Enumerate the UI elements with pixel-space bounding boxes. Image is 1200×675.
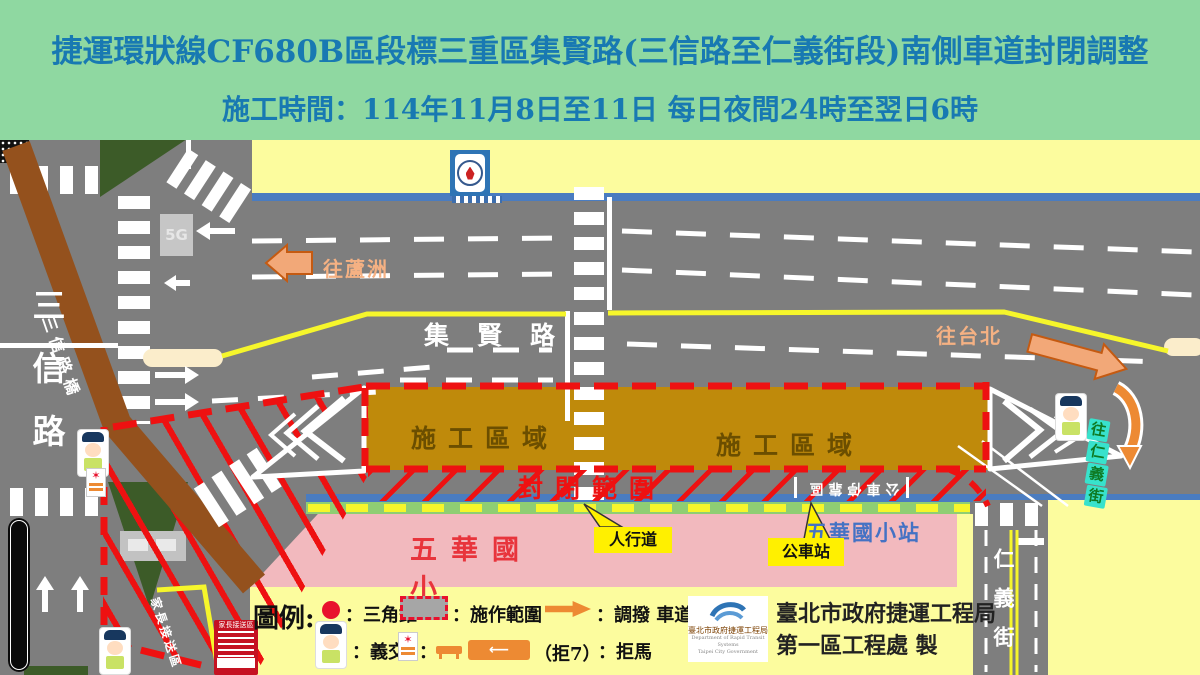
mrt-logo-en2: Taipei City Government: [688, 649, 768, 656]
legend-lane-shift-label: ：調撥 車道: [596, 601, 692, 627]
legend-police-icon: [316, 622, 346, 668]
legend-barrier-label: ：拒馬: [598, 638, 652, 664]
barrier-icon: [436, 646, 462, 654]
to-renyi-char: 義: [1084, 462, 1108, 486]
to-renyi-char: 仁: [1085, 440, 1109, 464]
sign-footer-bar: [217, 658, 255, 668]
legend-work-area-label: ：施作範圍: [452, 601, 542, 627]
title-line2: 施工時間：114年11月8日至11日 每日夜間24時至翌日6時: [0, 88, 1200, 128]
legend-title: 圖例:: [253, 598, 315, 635]
parent-pickup-sign-text: 家長接送區: [214, 620, 258, 630]
bus-bay-road-text: 公車停靠區: [797, 477, 907, 499]
sidewalk-callout: 人行道: [594, 527, 672, 553]
legend-warning-light-icon: ✶: [398, 632, 418, 661]
map-linework: [0, 140, 1200, 675]
to-renyi-char: 街: [1084, 485, 1108, 509]
sidewalk-callout-tail: [584, 504, 622, 527]
warning-light-icon: ✶: [86, 468, 106, 497]
busstop-callout: 公車站: [768, 538, 844, 566]
org-name: 臺北市政府捷運工程局 第一區工程處 製: [776, 598, 996, 662]
closure-range-label: 封閉範圍: [497, 469, 687, 505]
to-renyi-char: 往: [1086, 418, 1110, 442]
police-officer-icon: [1056, 394, 1086, 440]
title-line1: 捷運環狀線CF680B區段標三重區集賢路(三信路至仁義街段)南側車道封閉調整: [0, 26, 1200, 71]
org-name-line2: 第一區工程處 製: [776, 630, 996, 662]
flame-icon: [466, 167, 475, 180]
construction-zone-label-west: 施工區域: [405, 419, 565, 455]
police-officer-icon: [100, 628, 130, 674]
detour-sign-icon: ⟵: [468, 640, 530, 660]
school-label: 五華國小: [410, 528, 570, 606]
construction-notice-page: 捷運環狀線CF680B區段標三重區集賢路(三信路至仁義街段)南側車道封閉調整 施…: [0, 0, 1200, 675]
gas-station-logo: [450, 150, 490, 196]
crosswalk-northeast-diagonal: [166, 149, 251, 223]
legend-barrier-paren: （拒7）: [534, 640, 601, 666]
header-banner: 捷運環狀線CF680B區段標三重區集賢路(三信路至仁義街段)南側車道封閉調整 施…: [0, 0, 1200, 140]
cone-icon: [322, 601, 340, 619]
to-luzhou-label: 往蘆洲: [323, 253, 389, 282]
to-taipei-arrow: [1025, 326, 1131, 387]
station-driveway-strip: [452, 196, 502, 203]
mrt-logo-icon: [706, 598, 750, 622]
legend-colon: ：: [419, 638, 437, 664]
to-taipei-label: 往台北: [936, 320, 1002, 349]
parent-pickup-signboard: 家長接送區: [214, 620, 258, 675]
jixian-road-label: 集賢路: [424, 316, 583, 352]
construction-zone-label-east: 施工區域: [700, 426, 880, 462]
sign-text-lines: [218, 631, 254, 657]
mrt-logo-en1: Department of Rapid Transit Systems: [688, 635, 768, 649]
work-area-icon: [400, 596, 448, 620]
org-name-line1: 臺北市政府捷運工程局: [776, 598, 996, 630]
mrt-logo-box: 臺北市政府捷運工程局 Department of Rapid Transit S…: [688, 596, 768, 662]
mrt-logo-title: 臺北市政府捷運工程局: [688, 626, 768, 635]
